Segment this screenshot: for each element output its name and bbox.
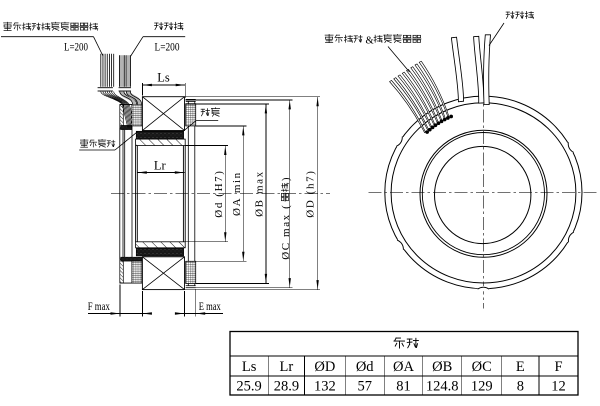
- svg-text:&: &: [366, 36, 374, 47]
- svg-text:Lr: Lr: [280, 359, 294, 375]
- svg-text:ØC max (: ØC max (: [280, 204, 292, 260]
- svg-text:132: 132: [314, 379, 336, 395]
- svg-text:Ls: Ls: [242, 359, 257, 375]
- svg-text:E max: E max: [199, 301, 221, 313]
- svg-text:ØC: ØC: [472, 359, 492, 375]
- svg-text:): ): [280, 177, 292, 181]
- svg-text:8: 8: [517, 379, 524, 395]
- svg-text:F: F: [554, 359, 562, 375]
- svg-text:Ls: Ls: [157, 71, 170, 85]
- svg-text:Lr: Lr: [154, 159, 167, 173]
- svg-text:ØD (h7): ØD (h7): [304, 170, 316, 218]
- svg-text:ØD: ØD: [314, 359, 335, 375]
- svg-text:124.8: 124.8: [426, 379, 459, 395]
- svg-text:25.9: 25.9: [236, 379, 261, 395]
- svg-text:F max: F max: [88, 301, 110, 313]
- svg-text:E: E: [516, 359, 525, 375]
- svg-text:ØA min: ØA min: [231, 171, 243, 216]
- svg-text:Ød: Ød: [356, 359, 374, 375]
- svg-text:28.9: 28.9: [274, 379, 299, 395]
- svg-text:ØB max: ØB max: [253, 170, 265, 217]
- svg-text:L=200: L=200: [155, 42, 180, 54]
- svg-text:Ød (H7): Ød (H7): [213, 170, 225, 218]
- svg-text:12: 12: [551, 379, 566, 395]
- svg-text:ØB: ØB: [432, 359, 452, 375]
- svg-text:ØA: ØA: [393, 359, 414, 375]
- svg-text:57: 57: [357, 379, 372, 395]
- svg-text:81: 81: [396, 379, 411, 395]
- svg-text:129: 129: [471, 379, 493, 395]
- svg-text:L=200: L=200: [64, 42, 88, 54]
